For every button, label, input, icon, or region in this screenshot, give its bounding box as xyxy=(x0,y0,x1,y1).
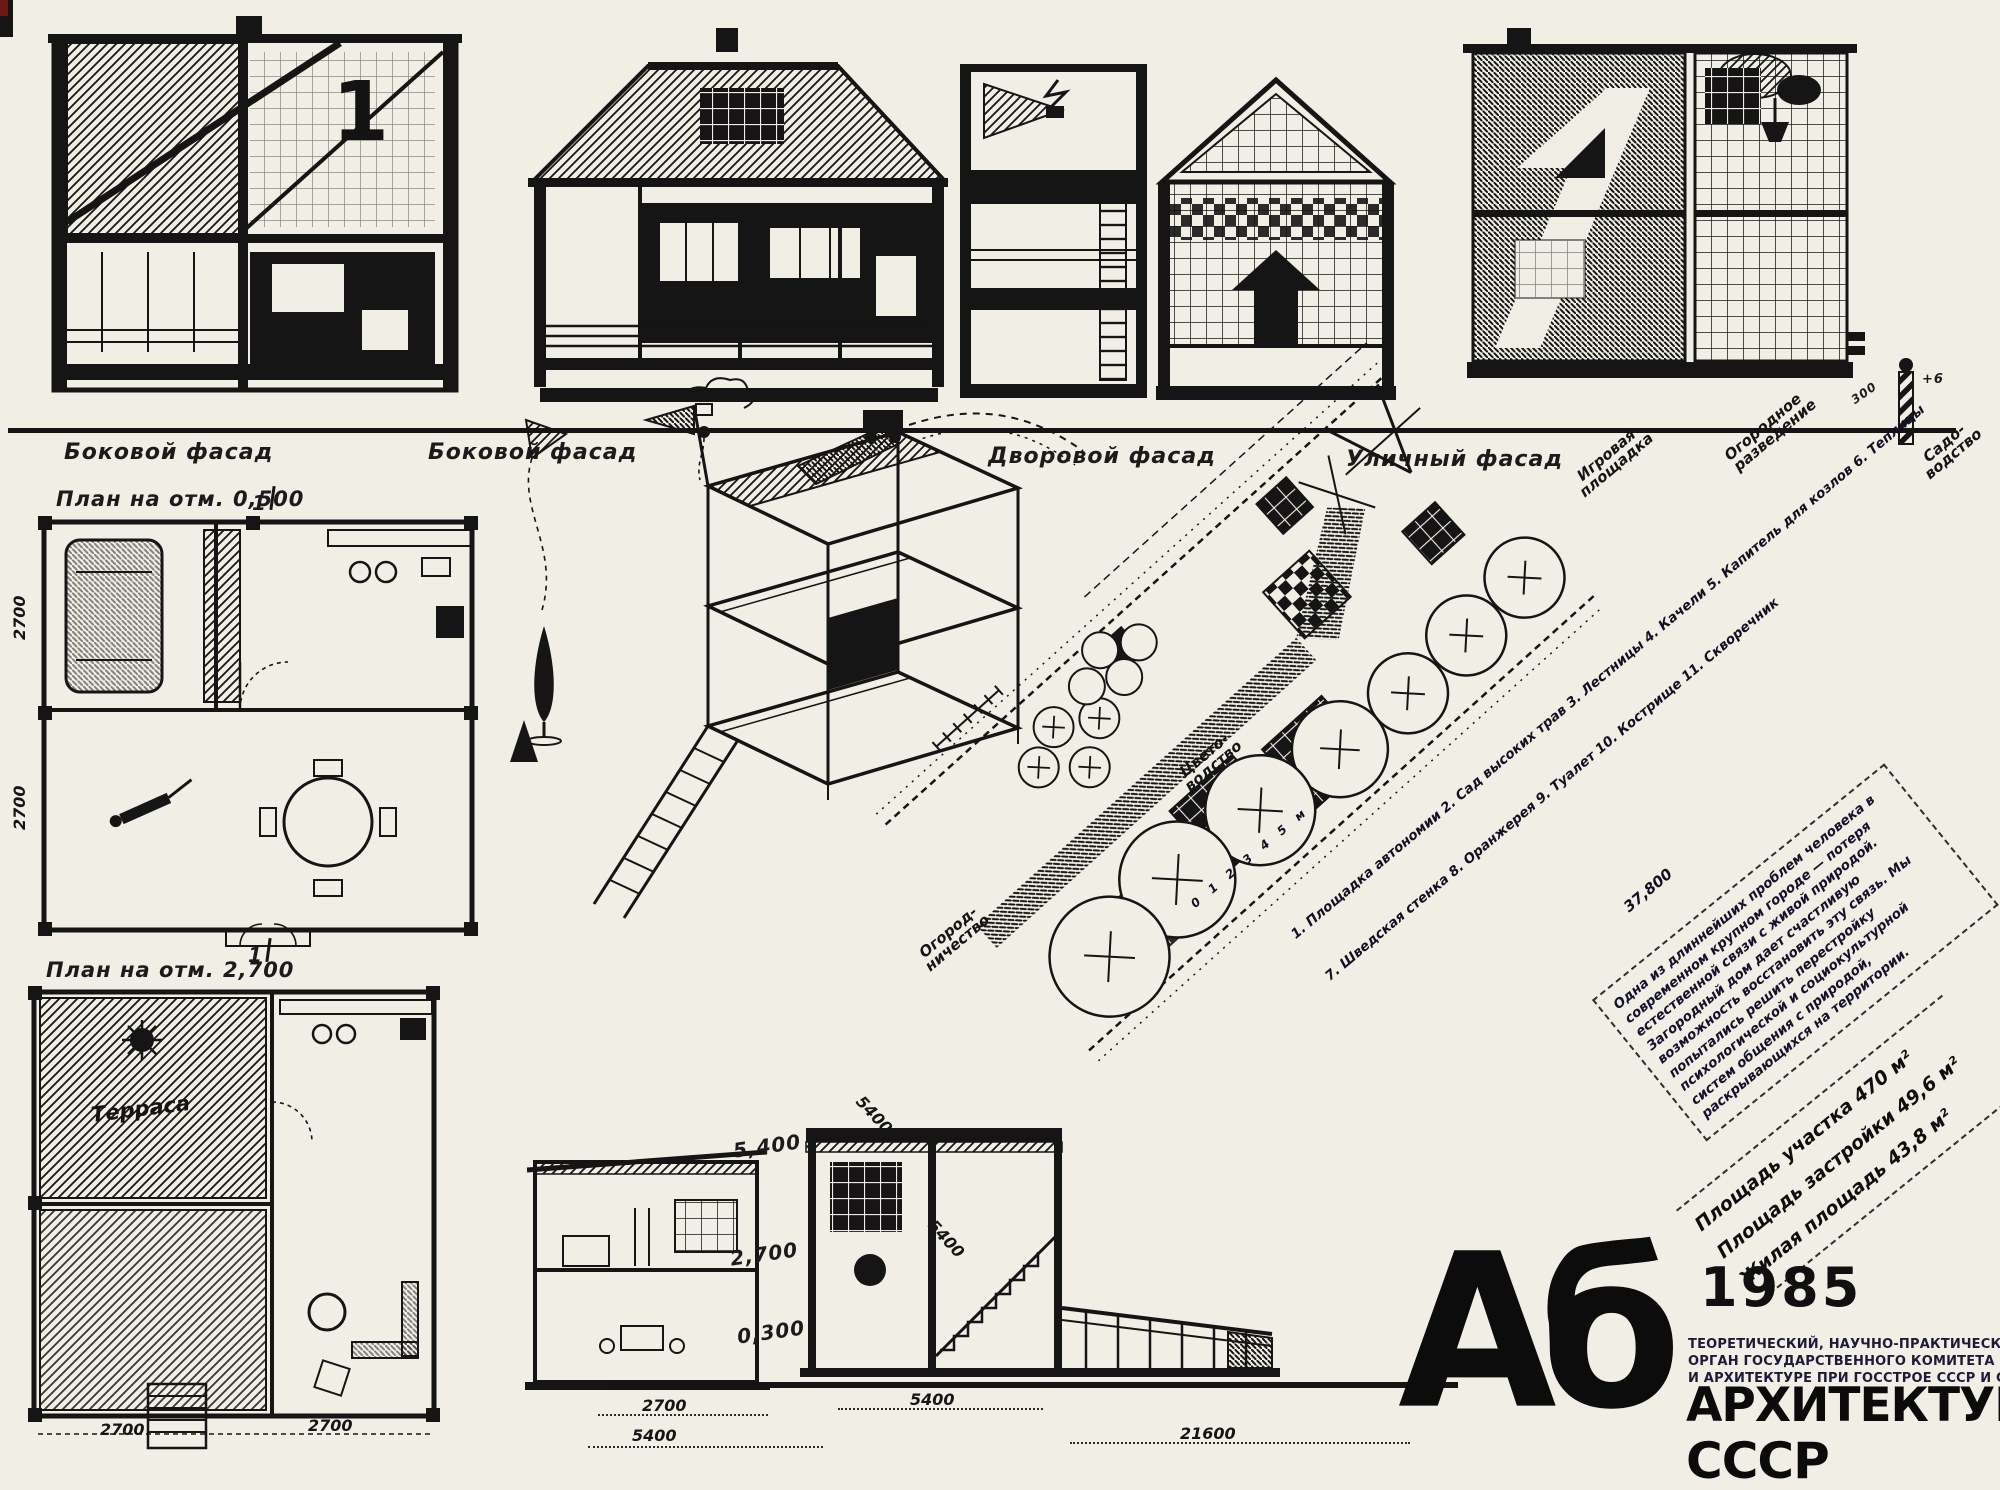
plan1-dim-lower: 2700 xyxy=(10,785,29,830)
dim-line-4 xyxy=(1070,1442,1410,1444)
plan2-title: План на отм. 2,700 xyxy=(46,958,294,982)
facade-drawing-side-1: 1 xyxy=(40,12,470,432)
plan-level-0500 xyxy=(28,510,493,960)
plan2-dim-left: 2700 xyxy=(100,1420,145,1439)
plan2-dim-right: 2700 xyxy=(308,1416,353,1435)
scan-corner-mark-red xyxy=(0,0,8,16)
journal-subtitle-line-1: ТЕОРЕТИЧЕСКИЙ, НАУЧНО-ПРАКТИЧЕСКИЙ ЖУРНА… xyxy=(1688,1336,2000,1353)
section2-dim-inner: 5400 xyxy=(910,1390,955,1409)
journal-subtitle-line-2: ОРГАН ГОСУДАРСТВЕННОГО КОМИТЕТА ПО ГРАЖД… xyxy=(1688,1353,2000,1370)
journal-title: АРХИТЕКТУРА xyxy=(1686,1378,2000,1433)
section2-dim-outer: 21600 xyxy=(1180,1424,1236,1443)
site-plan-drawing xyxy=(845,355,1635,1055)
pole-top-mark: +6 xyxy=(1922,372,1944,387)
section1-dim-inner: 2700 xyxy=(642,1396,687,1415)
plan1-dim-upper: 2700 xyxy=(10,595,29,640)
section-ground-band xyxy=(608,1382,1458,1388)
dim-line-2 xyxy=(588,1446,823,1448)
journal-logo: Аб xyxy=(1398,1232,1664,1435)
level-mark-top: 5,400 xyxy=(732,1129,803,1162)
facade-number: 1 xyxy=(332,65,389,160)
journal-title-sub: СССР xyxy=(1686,1432,1829,1490)
section-drawing-2 xyxy=(800,1118,1280,1398)
journal-page: { "page": {"background": "#f1eee5", "ink… xyxy=(0,0,2000,1451)
journal-year: 1985 xyxy=(1700,1256,1862,1319)
section1-dim-outer: 5400 xyxy=(632,1426,677,1445)
plan-level-2700: Терраса xyxy=(22,982,462,1452)
caption-side-facade-1: Боковой фасад xyxy=(64,440,273,465)
